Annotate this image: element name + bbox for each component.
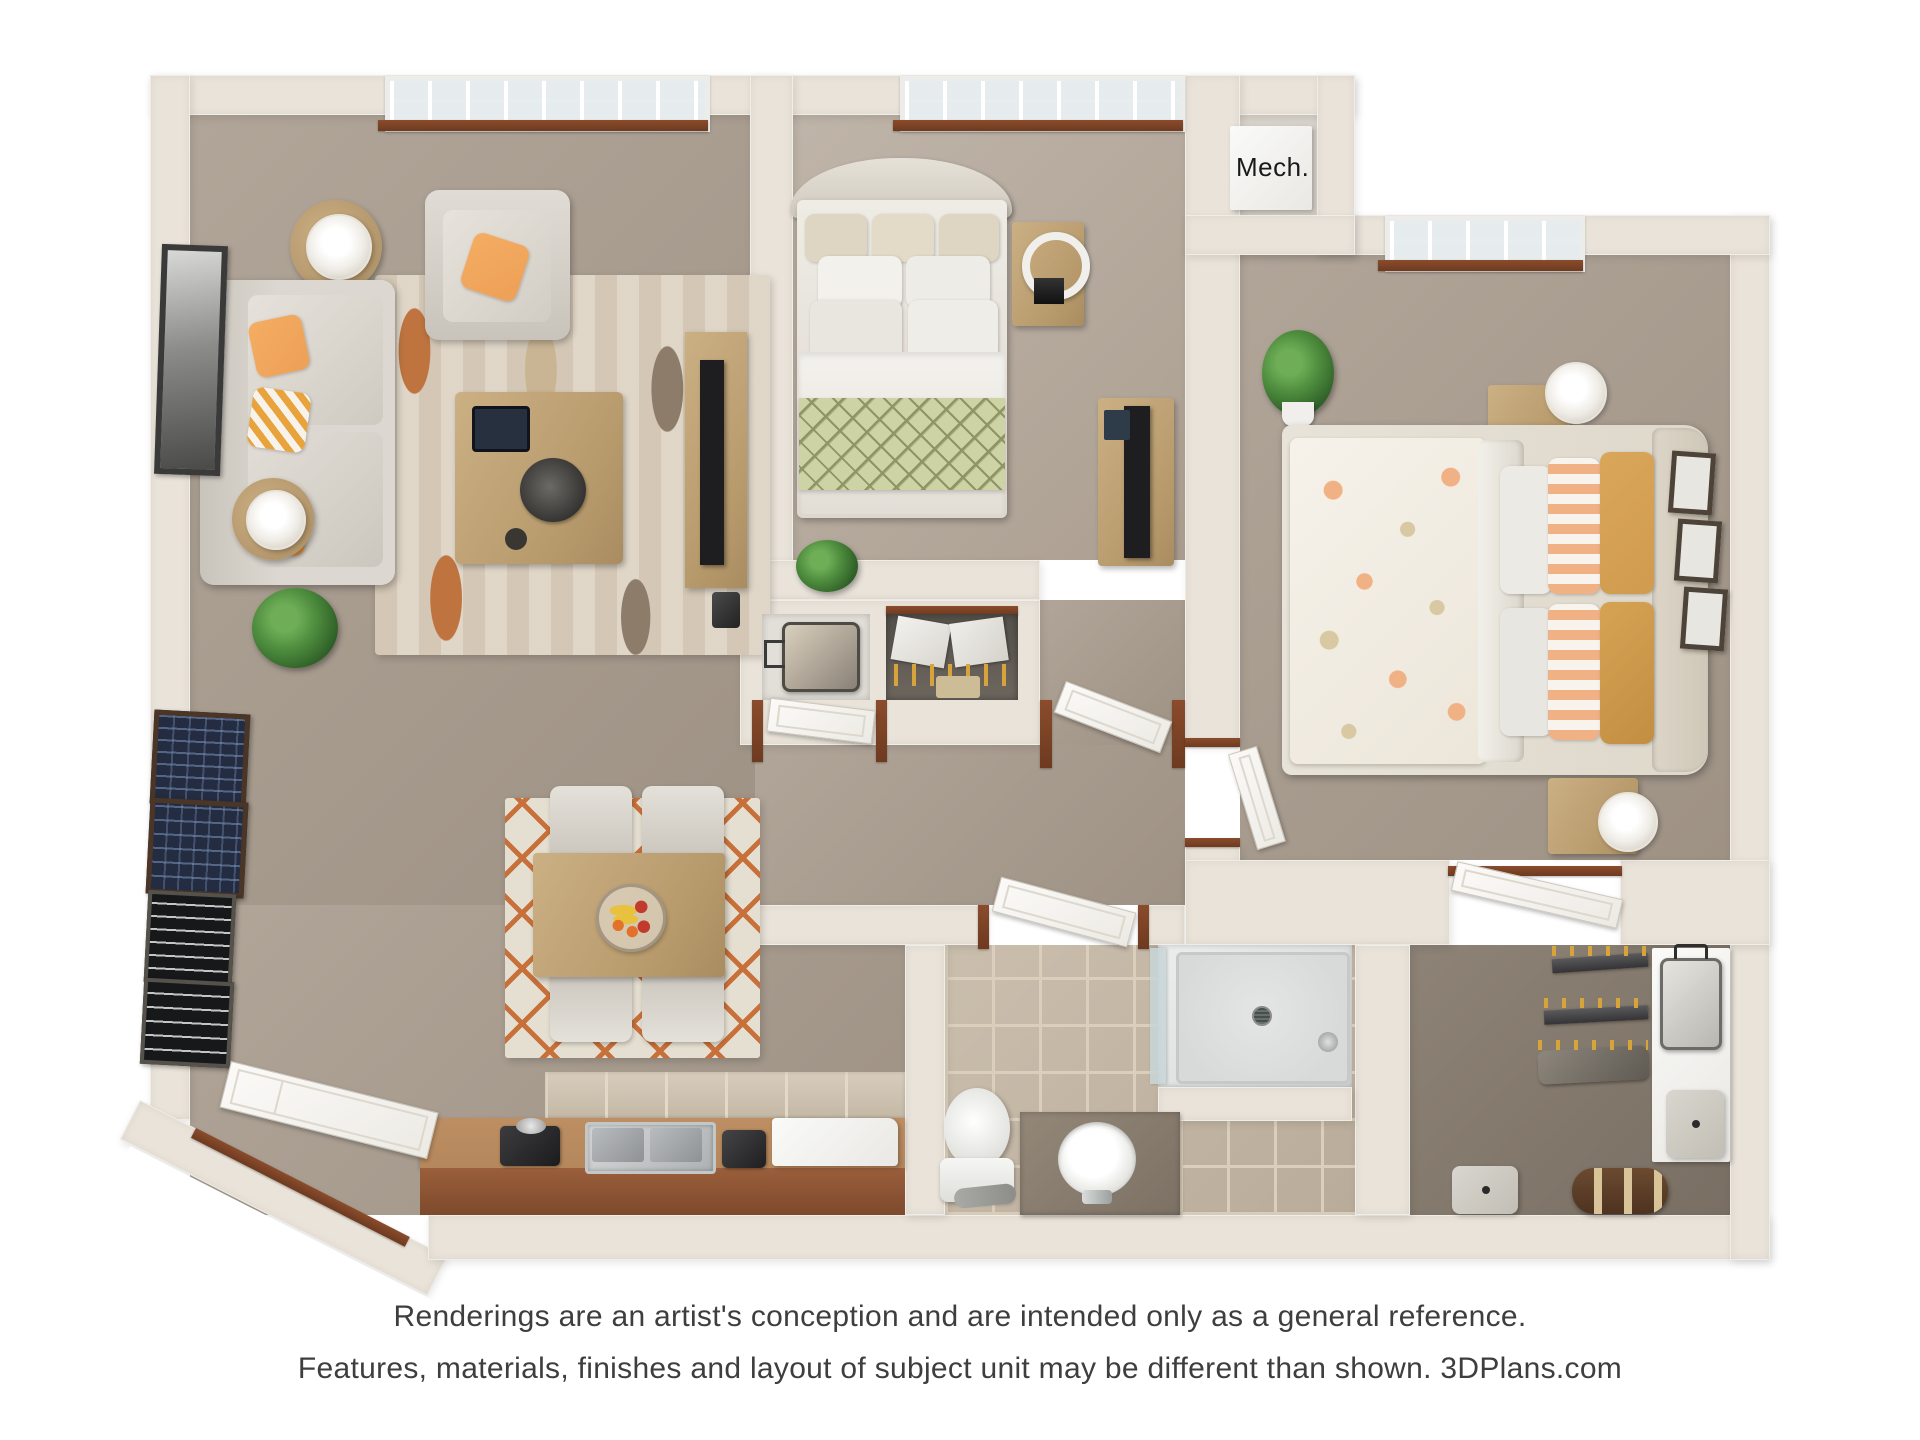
sink-basin-right xyxy=(650,1128,702,1162)
bedroom1-door-jamb-left xyxy=(1040,700,1052,768)
sofa-chevron-pillow xyxy=(246,386,312,453)
speaker-living xyxy=(712,592,740,628)
coffee-table-vase xyxy=(505,528,527,550)
toilet-bowl xyxy=(944,1088,1010,1168)
disclaimer-line-1: Renderings are an artist's conception an… xyxy=(0,1300,1920,1334)
coffee-maker-carafe xyxy=(516,1118,546,1134)
bed2-striped-pillow-1 xyxy=(1548,458,1600,594)
bedroom1-book xyxy=(1104,410,1130,440)
storage-suitcase-handle xyxy=(764,640,785,668)
bed1-pillow-tan-1 xyxy=(805,214,867,262)
bedroom1-plant xyxy=(796,540,858,592)
vanity-faucet xyxy=(1082,1190,1112,1204)
blueprint-poster-2 xyxy=(146,798,249,899)
sofa-orange-pillow-1 xyxy=(247,313,311,379)
bedroom2-window-sill xyxy=(1378,260,1583,271)
bed1-green-throw xyxy=(799,398,1005,490)
vanity-sink xyxy=(1058,1122,1136,1196)
kitchen-counter-front xyxy=(420,1168,905,1215)
sink-basin-left xyxy=(592,1128,644,1162)
coat-closet-box xyxy=(936,676,980,698)
table-lamp-top xyxy=(306,214,372,280)
wall-bedroom2-closet-band-left xyxy=(1185,860,1450,945)
storage-door-jamb-right xyxy=(876,700,887,762)
shower-glass-panel xyxy=(1150,948,1166,1084)
bedroom1-door-jamb-right xyxy=(1172,700,1185,768)
kitchen-white-appliance xyxy=(772,1118,898,1166)
closet-suitcase-handle xyxy=(1674,944,1708,959)
bedroom2-door-trim-bottom xyxy=(1185,838,1240,847)
bed2-mustard-pillow-1 xyxy=(1600,452,1654,594)
bedroom2-wall-frame-1 xyxy=(1668,451,1716,516)
bed2-mustard-pillow-2 xyxy=(1600,602,1654,744)
shower-fixture xyxy=(1318,1032,1338,1052)
subway-sign-poster-1 xyxy=(144,890,237,986)
bathroom-door-jamb-left xyxy=(978,905,989,949)
living-room-window-sill xyxy=(378,120,708,131)
bed1-pillow-tan-3 xyxy=(939,214,999,262)
bedroom1-lamp-base xyxy=(1034,278,1064,304)
mech-label: Mech. xyxy=(1236,152,1308,183)
closet-rod-3-hangers xyxy=(1538,1040,1648,1050)
kitchen-backsplash-tile xyxy=(545,1072,905,1118)
shower-half-wall xyxy=(1158,1087,1352,1121)
bed2-white-pillow-2 xyxy=(1500,608,1552,736)
bed1-pillow-tan-2 xyxy=(872,214,934,262)
living-room-plant xyxy=(252,588,338,668)
wall-mech-south xyxy=(1185,215,1355,255)
bw-art-frame xyxy=(154,244,228,476)
closet-cube-right-button xyxy=(1692,1120,1700,1128)
subway-sign-poster-2 xyxy=(140,978,234,1069)
wall-bedroom2-closet-band-right xyxy=(1620,860,1770,945)
wall-bath-closet-divider xyxy=(1355,945,1410,1215)
closet-rod-1-hangers xyxy=(1552,946,1648,956)
bedroom1-window-sill xyxy=(893,120,1183,131)
toaster xyxy=(722,1130,766,1168)
bedroom2-plant-pot xyxy=(1282,402,1314,426)
bedroom2-lamp-top xyxy=(1545,362,1607,424)
disclaimer-line-2: Features, materials, finishes and layout… xyxy=(0,1352,1920,1386)
bathroom-door-jamb-right xyxy=(1138,905,1149,949)
bedroom2-wall-frame-2 xyxy=(1674,519,1722,584)
bed2-striped-pillow-2 xyxy=(1548,604,1600,740)
wall-hall-bath-north-left xyxy=(740,905,985,945)
storage-door-jamb-left xyxy=(752,700,763,762)
closet-suitcase xyxy=(1660,958,1722,1050)
floor-plan-rendering: Mech. xyxy=(0,0,1920,1440)
coat-closet-bifold-door xyxy=(891,616,952,669)
storage-suitcase xyxy=(782,622,860,692)
wall-hall-bath-north-right xyxy=(1145,905,1185,945)
wall-bottom xyxy=(428,1215,1770,1260)
hallway-floor xyxy=(755,745,1185,905)
blueprint-poster-1 xyxy=(150,710,251,809)
closet-rod-2-hangers xyxy=(1544,998,1648,1008)
bed1-pillow-big-1 xyxy=(810,300,902,360)
bedroom2-floral-duvet xyxy=(1290,438,1486,764)
bed2-white-pillow-1 xyxy=(1500,466,1552,594)
bedroom2-door-trim-top xyxy=(1185,738,1240,747)
coffee-table-tray xyxy=(520,458,586,522)
tv-living xyxy=(700,360,724,565)
table-lamp-bottom xyxy=(246,490,306,550)
closet-duffel-bag xyxy=(1572,1168,1668,1214)
coffee-table-tablet xyxy=(472,406,530,452)
closet-hanging-clothes xyxy=(1537,1045,1649,1085)
bedroom2-lamp-bottom xyxy=(1598,792,1658,852)
shower-drain xyxy=(1252,1006,1272,1026)
wall-right xyxy=(1730,215,1770,1260)
bed1-pillow-big-2 xyxy=(908,300,998,360)
coat-closet-bifold-door-2 xyxy=(949,616,1009,667)
wall-kitchen-bath-divider xyxy=(905,945,945,1215)
closet-cube-bottom-button xyxy=(1482,1186,1490,1194)
fruit-bowl xyxy=(596,884,666,952)
bedroom2-wall-frame-3 xyxy=(1680,587,1728,652)
